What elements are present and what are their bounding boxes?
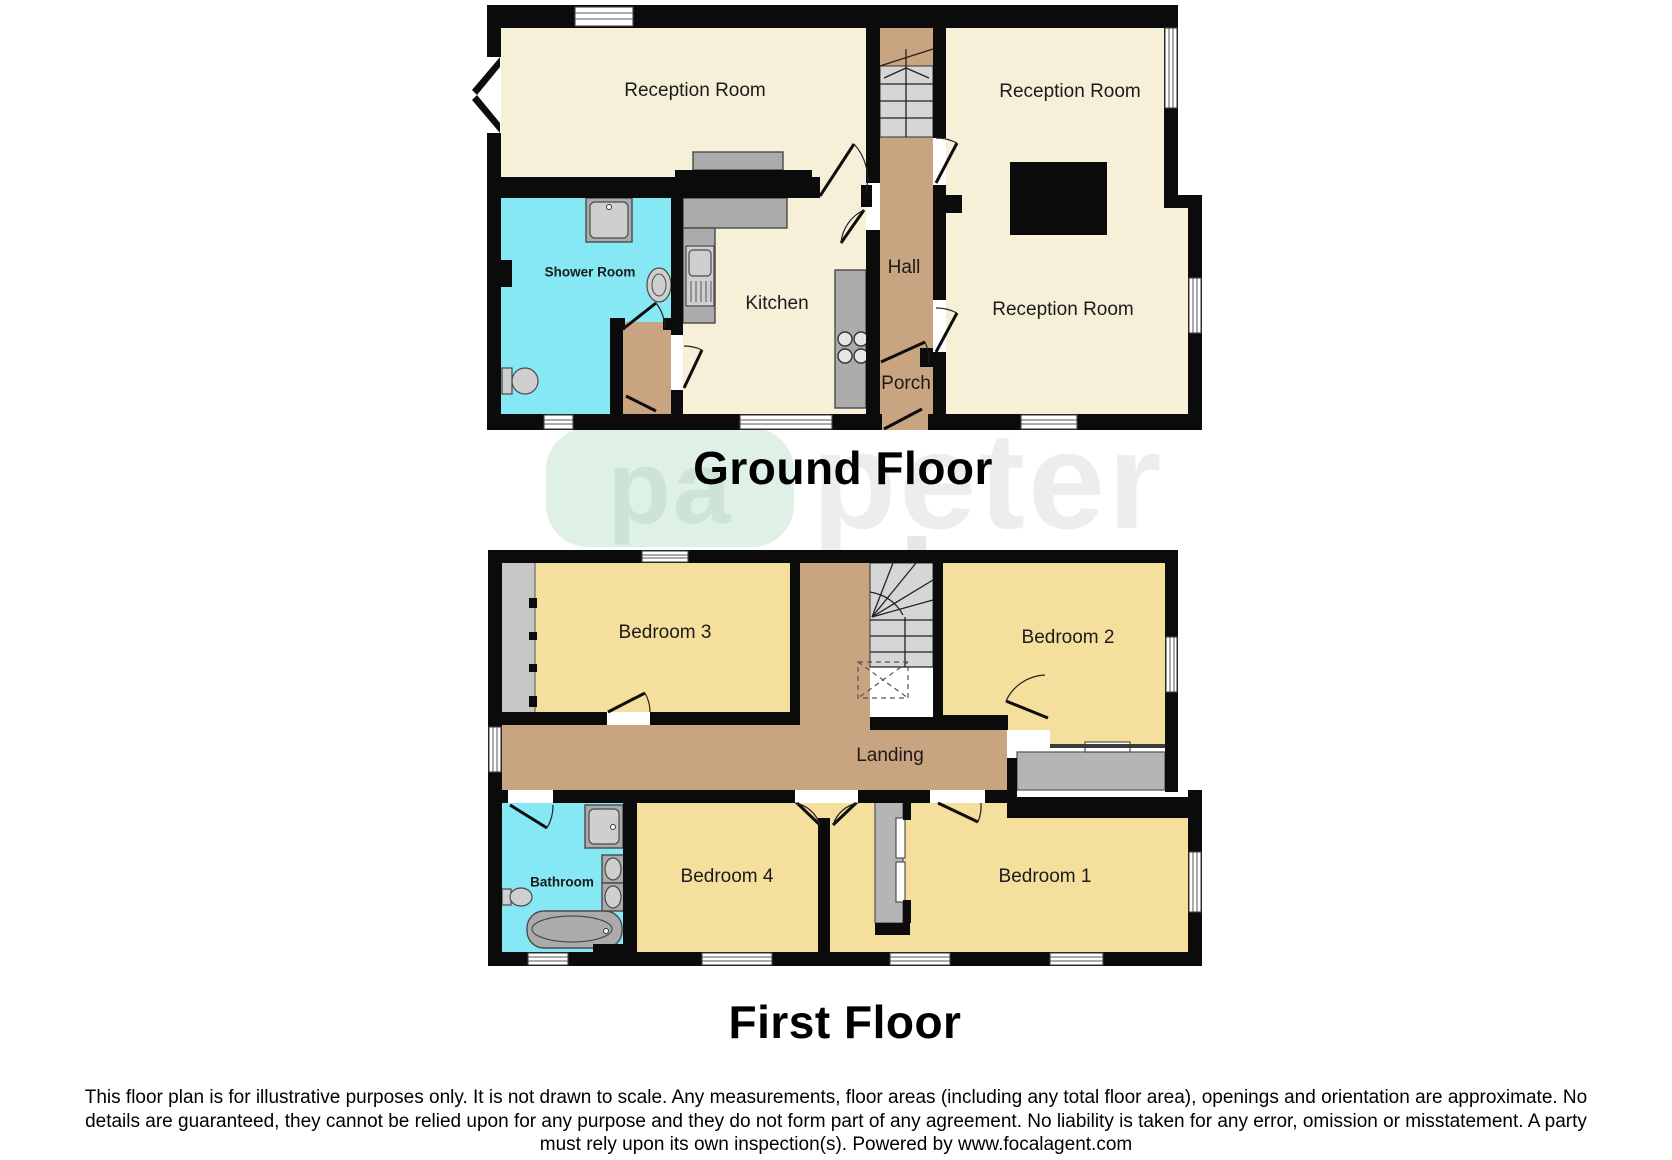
room-label-shower-room: Shower Room bbox=[545, 265, 636, 280]
room-label-landing: Landing bbox=[856, 745, 924, 767]
labels-layer: Reception Room Reception Room Reception … bbox=[0, 0, 1672, 1160]
room-label-reception-right: Reception Room bbox=[992, 299, 1134, 321]
room-label-bathroom: Bathroom bbox=[530, 875, 594, 890]
room-label-reception-top: Reception Room bbox=[624, 80, 766, 102]
first-floor-title: First Floor bbox=[729, 995, 962, 1049]
room-label-bedroom1: Bedroom 1 bbox=[999, 866, 1092, 888]
room-label-porch: Porch bbox=[881, 373, 931, 395]
floorplan-page: pa peter alan bbox=[0, 0, 1672, 1160]
room-label-bedroom4: Bedroom 4 bbox=[681, 866, 774, 888]
room-label-bedroom3: Bedroom 3 bbox=[619, 622, 712, 644]
disclaimer-line3: must rely upon its own inspection(s). Po… bbox=[0, 1133, 1672, 1157]
room-label-hall: Hall bbox=[888, 257, 921, 279]
ground-floor-title: Ground Floor bbox=[693, 441, 993, 495]
disclaimer-text: This floor plan is for illustrative purp… bbox=[0, 1086, 1672, 1157]
room-label-kitchen: Kitchen bbox=[745, 293, 808, 315]
room-label-reception-right-top: Reception Room bbox=[999, 81, 1141, 103]
disclaimer-line1: This floor plan is for illustrative purp… bbox=[0, 1086, 1672, 1110]
disclaimer-line2: details are guaranteed, they cannot be r… bbox=[0, 1110, 1672, 1134]
room-label-bedroom2: Bedroom 2 bbox=[1022, 627, 1115, 649]
